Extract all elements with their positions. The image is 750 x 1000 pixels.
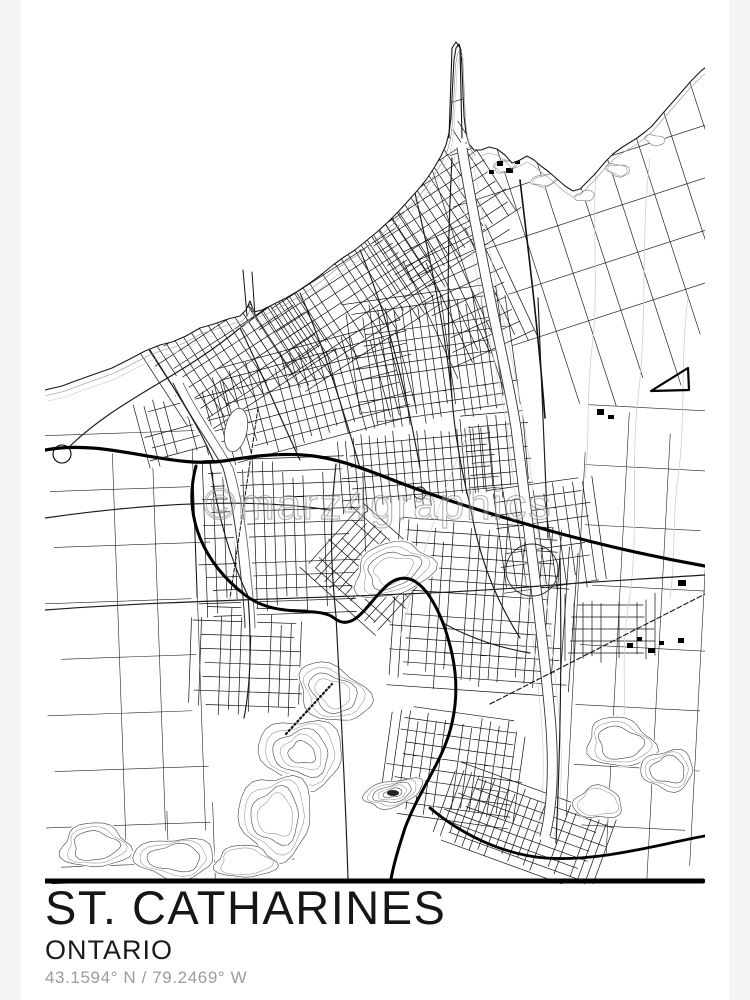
caption-block: ST. CATHARINES ONTARIO 43.1594° N / 79.2… <box>45 884 705 988</box>
watermark-text: ©marz4graphics <box>204 480 553 529</box>
coordinates-label: 43.1594° N / 79.2469° W <box>45 968 705 988</box>
subtitle: ONTARIO <box>45 936 705 964</box>
city-map-graphic: ©marz4graphics <box>45 28 705 884</box>
map-poster: ©marz4graphics ST. CATHARINES ONTARIO 43… <box>21 0 729 1000</box>
street-map-svg: ©marz4graphics <box>45 28 705 884</box>
page-title: ST. CATHARINES <box>45 884 705 932</box>
